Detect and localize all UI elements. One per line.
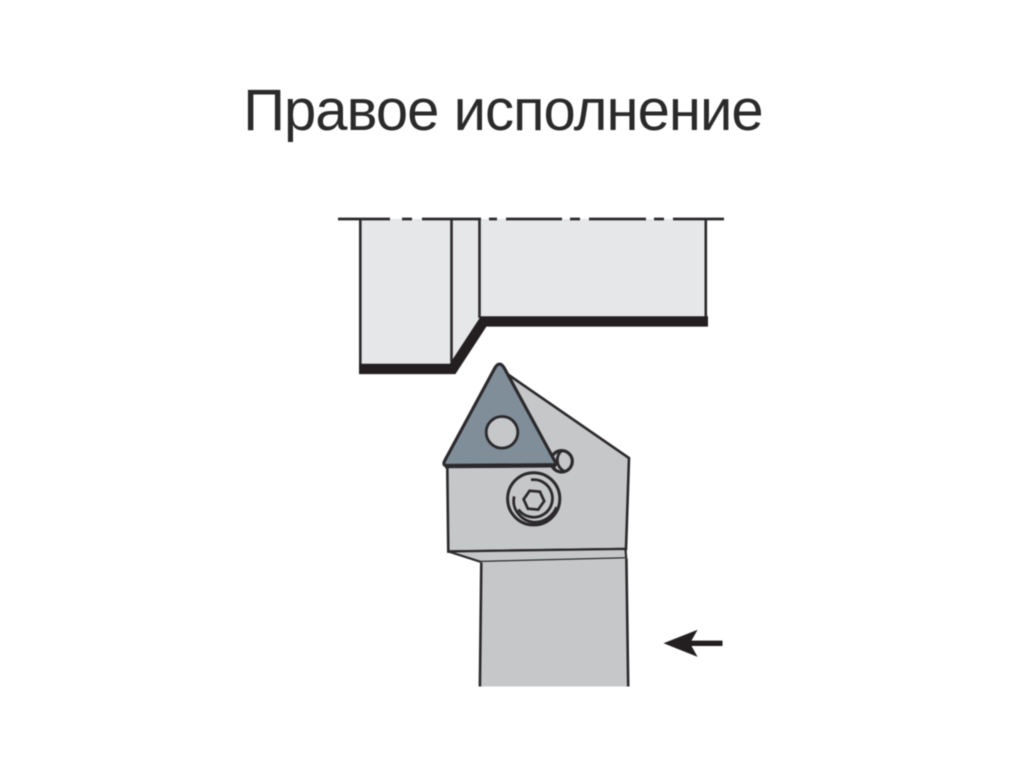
svg-text:Правое исполнение: Правое исполнение [243, 78, 762, 143]
